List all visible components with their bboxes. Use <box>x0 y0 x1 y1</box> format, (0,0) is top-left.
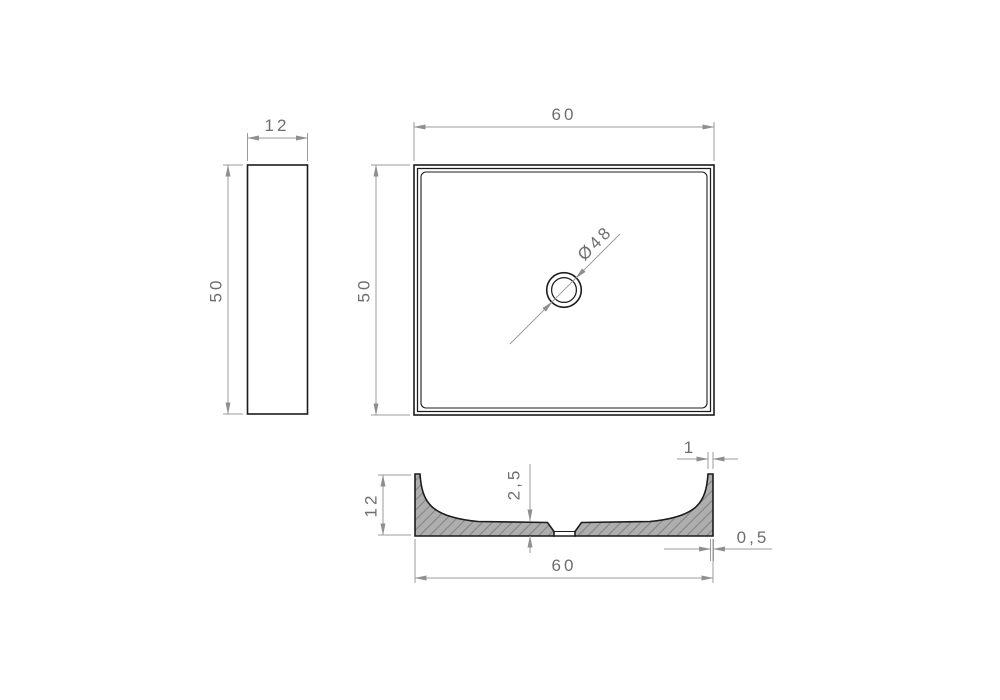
technical-drawing: 12 50 60 50 <box>0 0 1000 700</box>
dim-label-side-width: 12 <box>265 116 290 135</box>
dim-label-bottom-edge-offset: 0,5 <box>737 528 770 547</box>
dim-label-top-height: 50 <box>354 278 373 303</box>
dim-label-side-height: 50 <box>206 278 225 303</box>
canvas-background <box>0 0 1000 700</box>
dim-label-top-width: 60 <box>552 105 577 124</box>
dim-label-floor-thickness: 2,5 <box>504 468 523 501</box>
dim-label-rim-wall-thickness: 1 <box>684 438 696 457</box>
dim-label-section-width: 60 <box>552 556 577 575</box>
dim-label-section-height: 12 <box>361 493 380 518</box>
